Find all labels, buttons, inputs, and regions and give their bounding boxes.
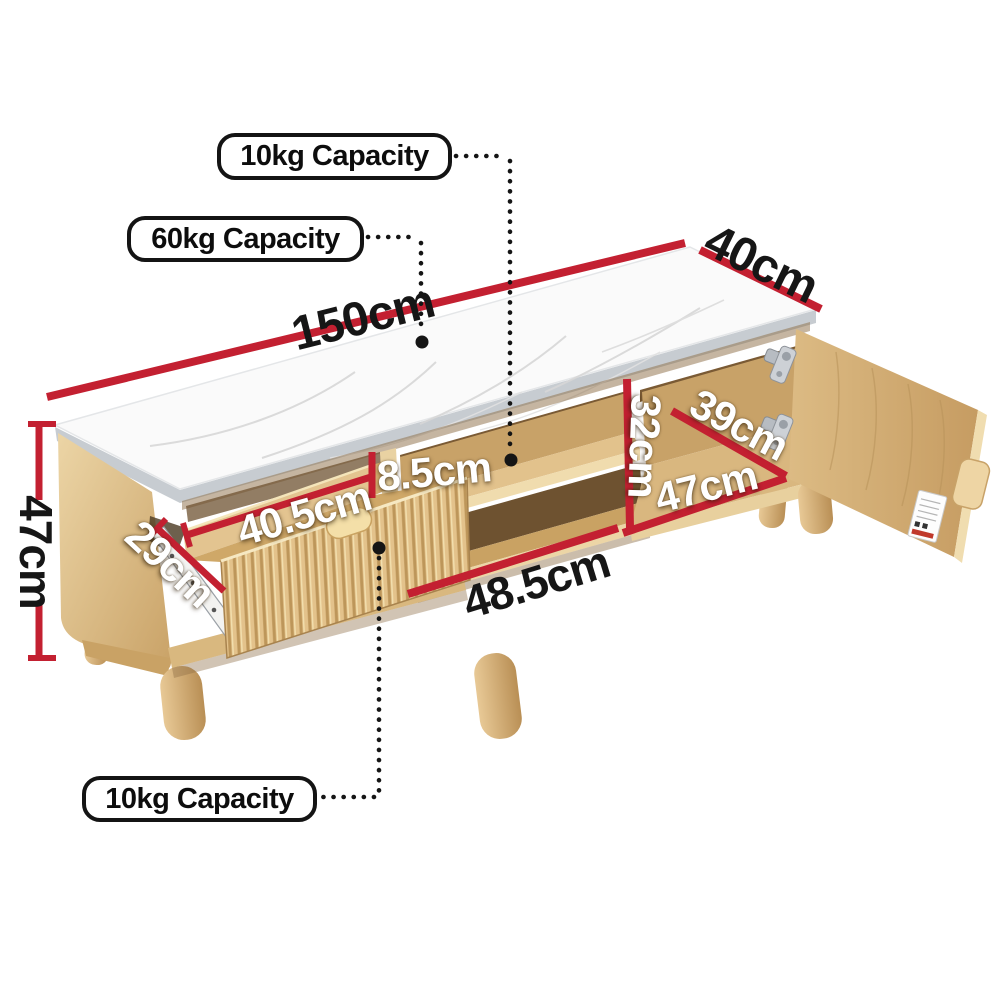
leg-left-front (158, 664, 208, 742)
connector-dot-shelf (505, 454, 518, 467)
product-dimension-diagram: 10kg Capacity 60kg Capacity 10kg Capacit… (0, 0, 1000, 1000)
callout-drawer-capacity: 10kg Capacity (82, 776, 317, 822)
dim-label-overall-height: 47cm (9, 495, 63, 609)
furniture-illustration (55, 247, 991, 742)
callout-tabletop-capacity-label: 60kg Capacity (151, 223, 340, 256)
connector-dot-drawer (373, 542, 386, 555)
callout-tabletop-capacity: 60kg Capacity (127, 216, 364, 262)
dim-label-top-gap: 8.5cm (375, 443, 493, 501)
diagram-canvas (0, 0, 1000, 1000)
callout-drawer-capacity-label: 10kg Capacity (105, 783, 294, 816)
leg-middle-front (472, 651, 524, 741)
callout-shelf-capacity: 10kg Capacity (217, 133, 452, 180)
callout-shelf-capacity-label: 10kg Capacity (240, 140, 429, 173)
connector-dot-top (416, 336, 429, 349)
